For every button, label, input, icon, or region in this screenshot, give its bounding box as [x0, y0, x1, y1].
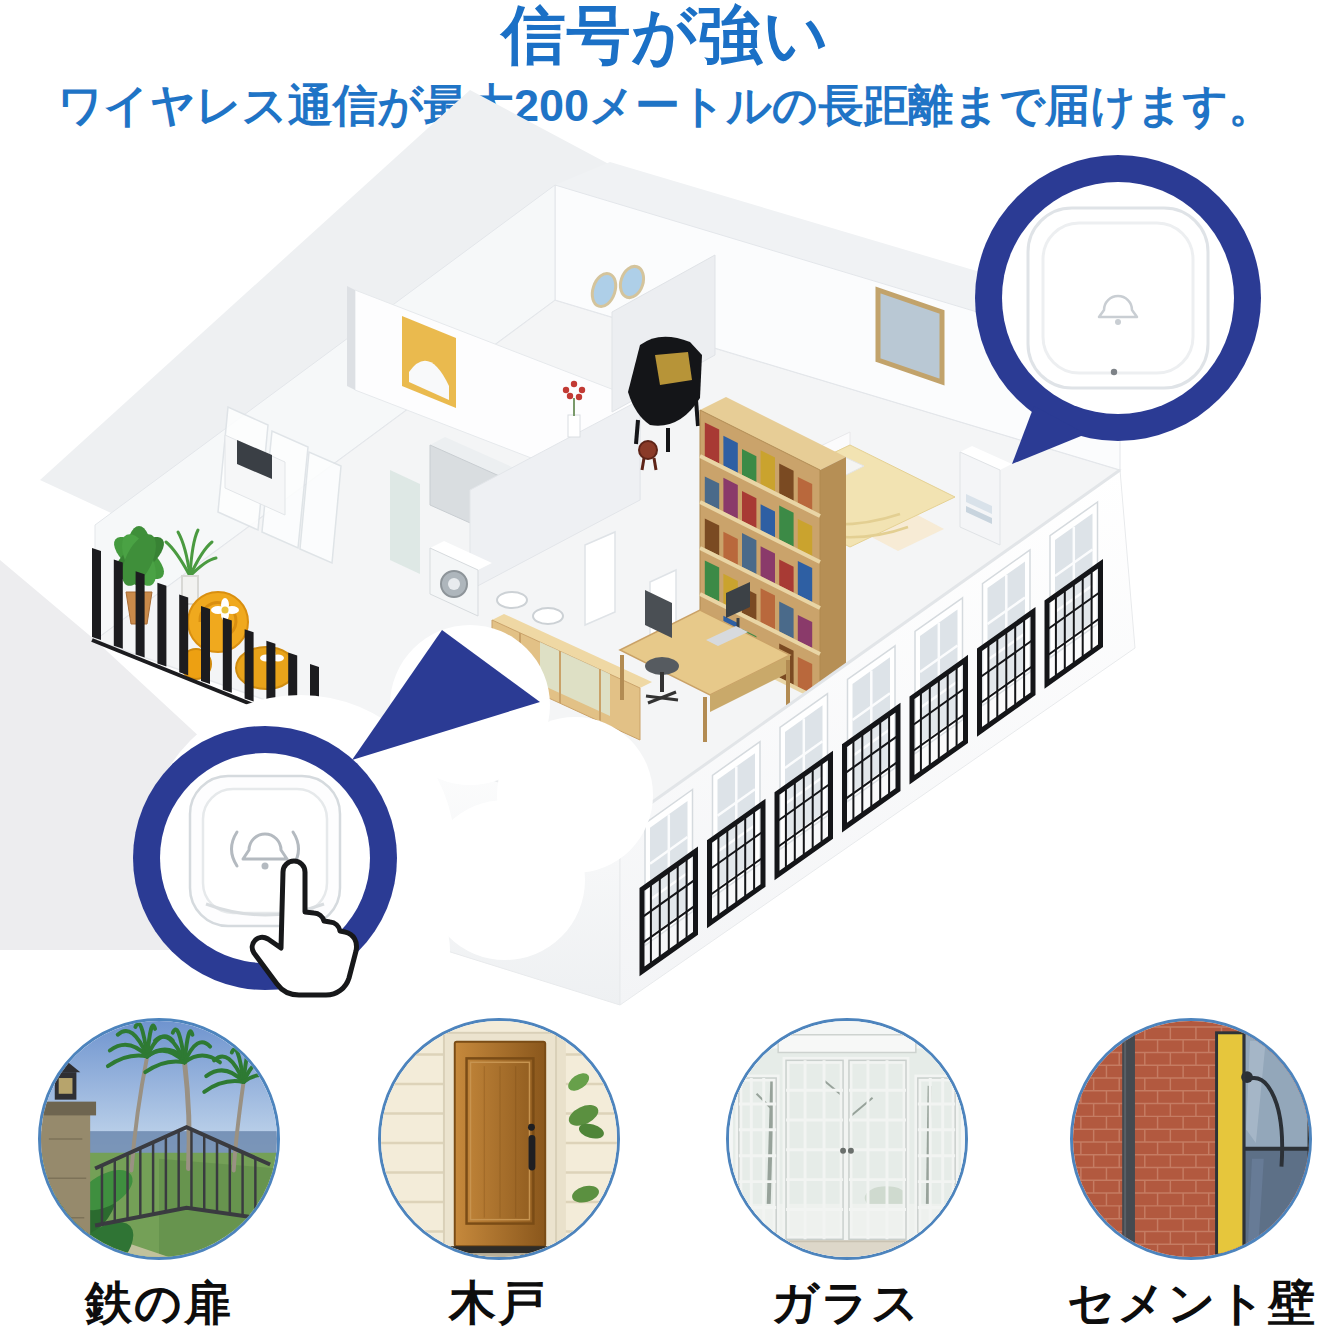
led-dot [1111, 369, 1117, 375]
glass-french-doors-photo [726, 1018, 968, 1260]
piano-stool [639, 441, 657, 459]
wooden-door-photo [378, 1018, 620, 1260]
iron-gate-photo [38, 1018, 280, 1260]
sink [533, 608, 563, 624]
brick-cement-wall-photo [1070, 1018, 1312, 1260]
material-label-iron-door: 鉄の扉 [9, 1272, 309, 1331]
chime-receiver-device [1028, 208, 1208, 388]
door-leaf [585, 532, 615, 625]
doorbell-button-device [190, 776, 340, 926]
drain-pipe [1122, 1021, 1135, 1257]
material-label-cement: セメント壁 [1042, 1272, 1331, 1331]
material-label-glass: ガラス [696, 1272, 996, 1331]
door-handle [529, 1135, 536, 1170]
material-label-wood-door: 木戸 [348, 1272, 648, 1331]
wooden-door [455, 1042, 545, 1247]
sink [497, 592, 527, 608]
shower-glass [390, 470, 420, 574]
product-infographic: 信号が強い ワイヤレス通信が最大200メートルの長距離まで届けます。 [0, 0, 1331, 1331]
